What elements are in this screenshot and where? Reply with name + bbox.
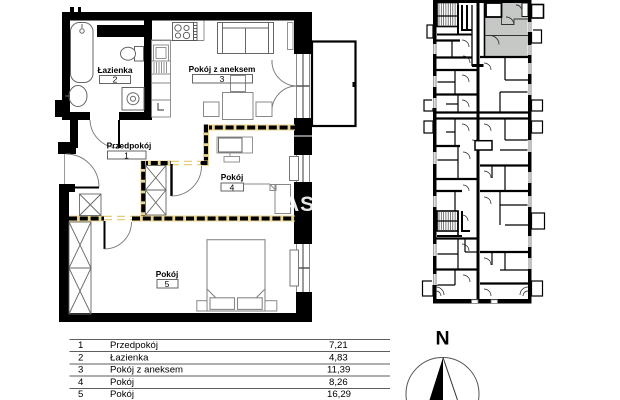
svg-text:Przedpokój: Przedpokój (110, 340, 158, 351)
svg-text:Pokój: Pokój (110, 377, 134, 388)
svg-text:Pokój z aneksem: Pokój z aneksem (189, 64, 256, 74)
svg-text:4: 4 (78, 377, 84, 388)
svg-text:4: 4 (230, 182, 235, 192)
svg-text:Pokój: Pokój (110, 389, 134, 400)
svg-text:7,21: 7,21 (329, 340, 348, 351)
svg-text:N: N (435, 328, 449, 350)
svg-text:Łazienka: Łazienka (110, 352, 149, 363)
svg-text:4,83: 4,83 (329, 352, 348, 363)
svg-text:16,29: 16,29 (327, 389, 351, 400)
svg-text:AS: AS (284, 193, 315, 216)
svg-text:11,39: 11,39 (327, 365, 350, 376)
svg-text:3: 3 (220, 74, 225, 84)
svg-text:3: 3 (78, 365, 83, 376)
svg-text:Przedpokój: Przedpokój (107, 141, 152, 151)
svg-text:Łazienka: Łazienka (97, 65, 132, 75)
svg-text:1: 1 (124, 150, 129, 160)
svg-text:5: 5 (165, 279, 170, 289)
svg-text:5: 5 (78, 389, 83, 400)
svg-text:2: 2 (113, 75, 118, 85)
svg-text:2: 2 (78, 352, 83, 363)
svg-text:8,26: 8,26 (329, 377, 348, 388)
svg-text:Pokój: Pokój (156, 269, 179, 279)
svg-text:Pokój z aneksem: Pokój z aneksem (110, 365, 183, 376)
svg-text:Pokój: Pokój (221, 172, 244, 182)
svg-text:1: 1 (78, 340, 83, 351)
